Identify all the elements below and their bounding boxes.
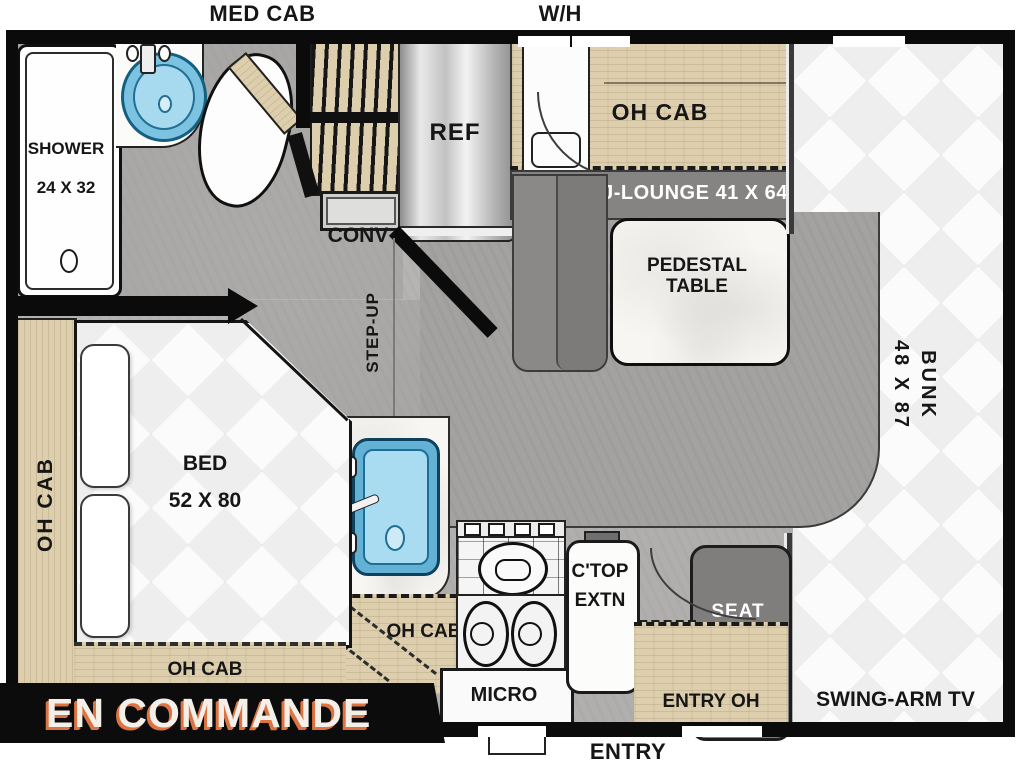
micro-vent xyxy=(488,737,546,755)
pillow-bottom xyxy=(80,494,130,638)
bath-faucet-handle-left xyxy=(126,45,139,62)
fridge-bottom-strip xyxy=(400,226,514,236)
bottom-wall-gap-entry xyxy=(682,726,762,737)
oven-burner-right xyxy=(511,601,557,667)
shower-label-line2: 24 X 32 xyxy=(20,179,112,198)
bath-partition-wall xyxy=(296,42,310,128)
shower-label: SHOWER 24 X 32 xyxy=(20,140,112,197)
order-banner: EN COMMANDE xyxy=(0,683,445,743)
stove-knob-1 xyxy=(464,523,481,536)
fridge-label: REF xyxy=(398,120,512,146)
j-lounge-seat xyxy=(512,174,608,372)
j-lounge-label: J-LOUNGE 41 X 64 xyxy=(600,182,790,204)
bedroom-oh-cab-bottom-label: OH CAB xyxy=(130,660,280,681)
pedestal-table-label: PEDESTAL TABLE xyxy=(620,256,774,298)
ctop-extn-line2: EXTN xyxy=(566,591,634,612)
bath-sink xyxy=(121,52,207,142)
oven-burner-right-cap xyxy=(518,622,542,646)
step-up-label-box: STEP-UP xyxy=(350,260,396,405)
stove xyxy=(456,520,562,670)
entry-oh-label: ENTRY OH xyxy=(634,692,788,713)
top-wall-gap-wh-mullion xyxy=(570,36,572,47)
kitchen-sink-drain xyxy=(385,525,405,551)
shower-label-line1: SHOWER xyxy=(20,140,112,159)
ctop-extn-label: C'TOP EXTN xyxy=(566,562,634,612)
pillow-top xyxy=(80,344,130,488)
conv-label: CONV xyxy=(316,224,400,247)
oven-burner-left xyxy=(463,601,509,667)
bunk-label-box: BUNK 48 X 87 xyxy=(868,312,960,457)
bunk-label: BUNK 48 X 87 xyxy=(887,340,941,430)
bedroom-oh-cab-left-label: OH CAB xyxy=(33,458,56,553)
cooktop-burner xyxy=(478,542,548,596)
j-lounge-seat-back xyxy=(556,176,606,370)
rv-floor-plan: SHOWER 24 X 32 CONV REF STEP-UP OH CAB J… xyxy=(0,0,1024,768)
swing-arm-tv-label: SWING-ARM TV xyxy=(793,688,998,711)
entry-label: ENTRY xyxy=(573,740,683,764)
interior-wall-bath-bed xyxy=(18,296,228,316)
bunk-label-line1: BUNK xyxy=(914,340,941,430)
top-wall-gap-window xyxy=(833,33,905,47)
ctop-extn-line1: C'TOP xyxy=(566,562,634,583)
pedestal-table-line1: PEDESTAL xyxy=(620,256,774,277)
pocket-door-arrow xyxy=(228,288,258,324)
bed-label-line1: BED xyxy=(145,452,265,475)
med-cab-label: MED CAB xyxy=(195,2,330,26)
cooktop xyxy=(456,536,566,598)
micro-label: MICRO xyxy=(440,684,568,706)
order-banner-text: EN COMMANDE xyxy=(46,691,406,736)
step-up-label: STEP-UP xyxy=(364,292,383,373)
bed-label: BED 52 X 80 xyxy=(145,452,265,512)
bath-faucet-handle-right xyxy=(158,45,171,62)
bottom-wall-gap-galley xyxy=(478,726,546,737)
dinette-oh-cab-line xyxy=(604,82,792,84)
shower-drain xyxy=(60,249,78,273)
oven xyxy=(456,594,566,674)
bath-sink-drain xyxy=(158,95,172,113)
right-wall xyxy=(1003,30,1015,737)
bedroom-oh-cab-left-label-box: OH CAB xyxy=(18,360,72,650)
bed-label-line2: 52 X 80 xyxy=(145,489,265,512)
stove-knob-3 xyxy=(514,523,531,536)
left-wall xyxy=(6,30,18,737)
cooktop-burner-center xyxy=(495,559,531,581)
conv-appliance-inner xyxy=(326,197,396,225)
top-wall-gap-wh xyxy=(518,33,630,47)
wardrobe-shelf-band xyxy=(310,112,402,123)
stove-knob-4 xyxy=(538,523,555,536)
pedestal-table-line2: TABLE xyxy=(620,277,774,298)
bath-faucet xyxy=(140,44,156,74)
stove-knob-2 xyxy=(488,523,505,536)
bunk-label-line2: 48 X 87 xyxy=(887,340,914,430)
wh-label: W/H xyxy=(520,2,600,26)
oven-burner-left-cap xyxy=(470,622,494,646)
bunk-divider-top xyxy=(789,44,794,234)
